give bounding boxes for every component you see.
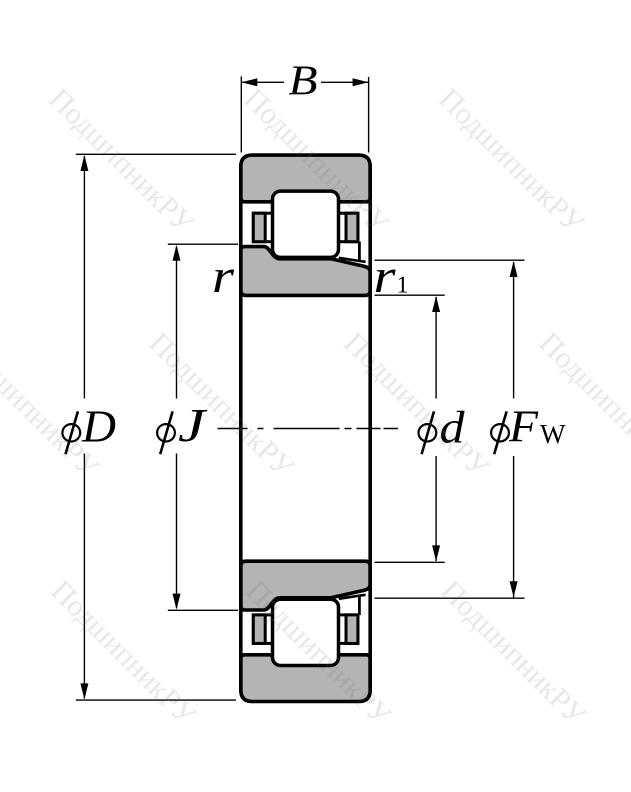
svg-text:r: r: [374, 250, 396, 303]
svg-text:ПодшипникРУ: ПодшипникРУ: [432, 82, 590, 240]
svg-text:ПодшипникРУ: ПодшипникРУ: [42, 82, 200, 240]
svg-text:ПодшипникРУ: ПодшипникРУ: [337, 326, 495, 484]
svg-text:ПодшипникРУ: ПодшипникРУ: [532, 326, 631, 484]
svg-text:W: W: [540, 419, 566, 449]
svg-text:B: B: [289, 59, 318, 105]
svg-text:r: r: [212, 250, 234, 303]
svg-text:1: 1: [397, 273, 409, 299]
svg-text:ПодшипникРУ: ПодшипникРУ: [142, 326, 300, 484]
svg-text:F: F: [508, 401, 539, 452]
